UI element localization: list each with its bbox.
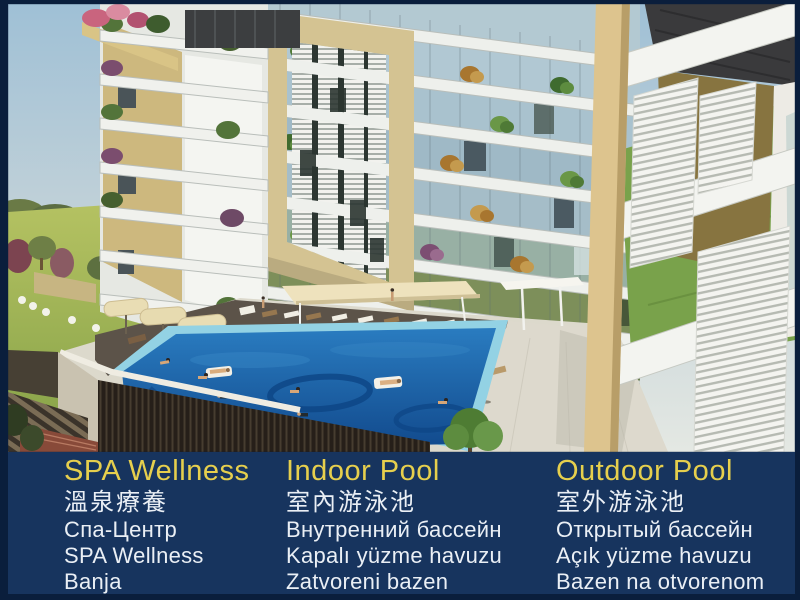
caption-line-russian: Внутренний бассейн (286, 517, 502, 543)
caption-line-serbian: Bazen na otvorenom (556, 569, 764, 595)
caption-line-russian: Спа-Центр (64, 517, 249, 543)
caption-line-serbian: Zatvoreni bazen (286, 569, 502, 595)
caption-title: Outdoor Pool (556, 455, 764, 488)
caption-line-chinese: 室外游泳池 (556, 488, 764, 517)
slide-frame: SPA Wellness 溫泉療養 Спа-Центр SPA Wellness… (0, 0, 800, 600)
caption-line-chinese: 溫泉療養 (64, 488, 249, 517)
caption-line-russian: Открытый бассейн (556, 517, 764, 543)
caption-band: SPA Wellness 溫泉療養 Спа-Центр SPA Wellness… (8, 452, 795, 594)
caption-column-indoor-pool: Indoor Pool 室內游泳池 Внутренний бассейн Kap… (286, 455, 502, 595)
caption-column-spa-wellness: SPA Wellness 溫泉療養 Спа-Центр SPA Wellness… (64, 455, 249, 595)
rendering-scene (8, 4, 795, 452)
roof-pergola (185, 10, 300, 48)
caption-line-turkish: Açık yüzme havuzu (556, 543, 764, 569)
tan-frame-feature (261, 11, 414, 312)
caption-line-chinese: 室內游泳池 (286, 488, 502, 517)
caption-title: SPA Wellness (64, 455, 249, 488)
caption-line-turkish: SPA Wellness (64, 543, 249, 569)
caption-column-outdoor-pool: Outdoor Pool 室外游泳池 Открытый бассейн Açık… (556, 455, 764, 595)
property-rendering-image (8, 4, 795, 452)
caption-line-turkish: Kapalı yüzme havuzu (286, 543, 502, 569)
caption-title: Indoor Pool (286, 455, 502, 488)
caption-line-serbian: Banja (64, 569, 249, 595)
